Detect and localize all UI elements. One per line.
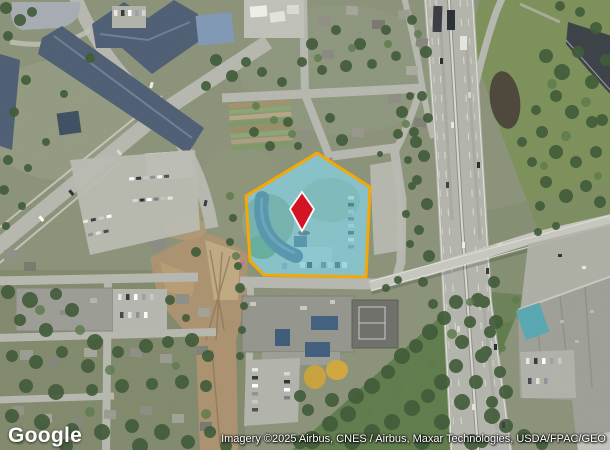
- imagery-grain: [0, 0, 610, 450]
- satellite-map-canvas[interactable]: [0, 0, 610, 450]
- map-viewport[interactable]: Google Imagery ©2025 Airbus, CNES / Airb…: [0, 0, 610, 450]
- google-logo[interactable]: Google: [8, 425, 82, 446]
- map-attribution: Imagery ©2025 Airbus, CNES / Airbus, Max…: [221, 433, 606, 446]
